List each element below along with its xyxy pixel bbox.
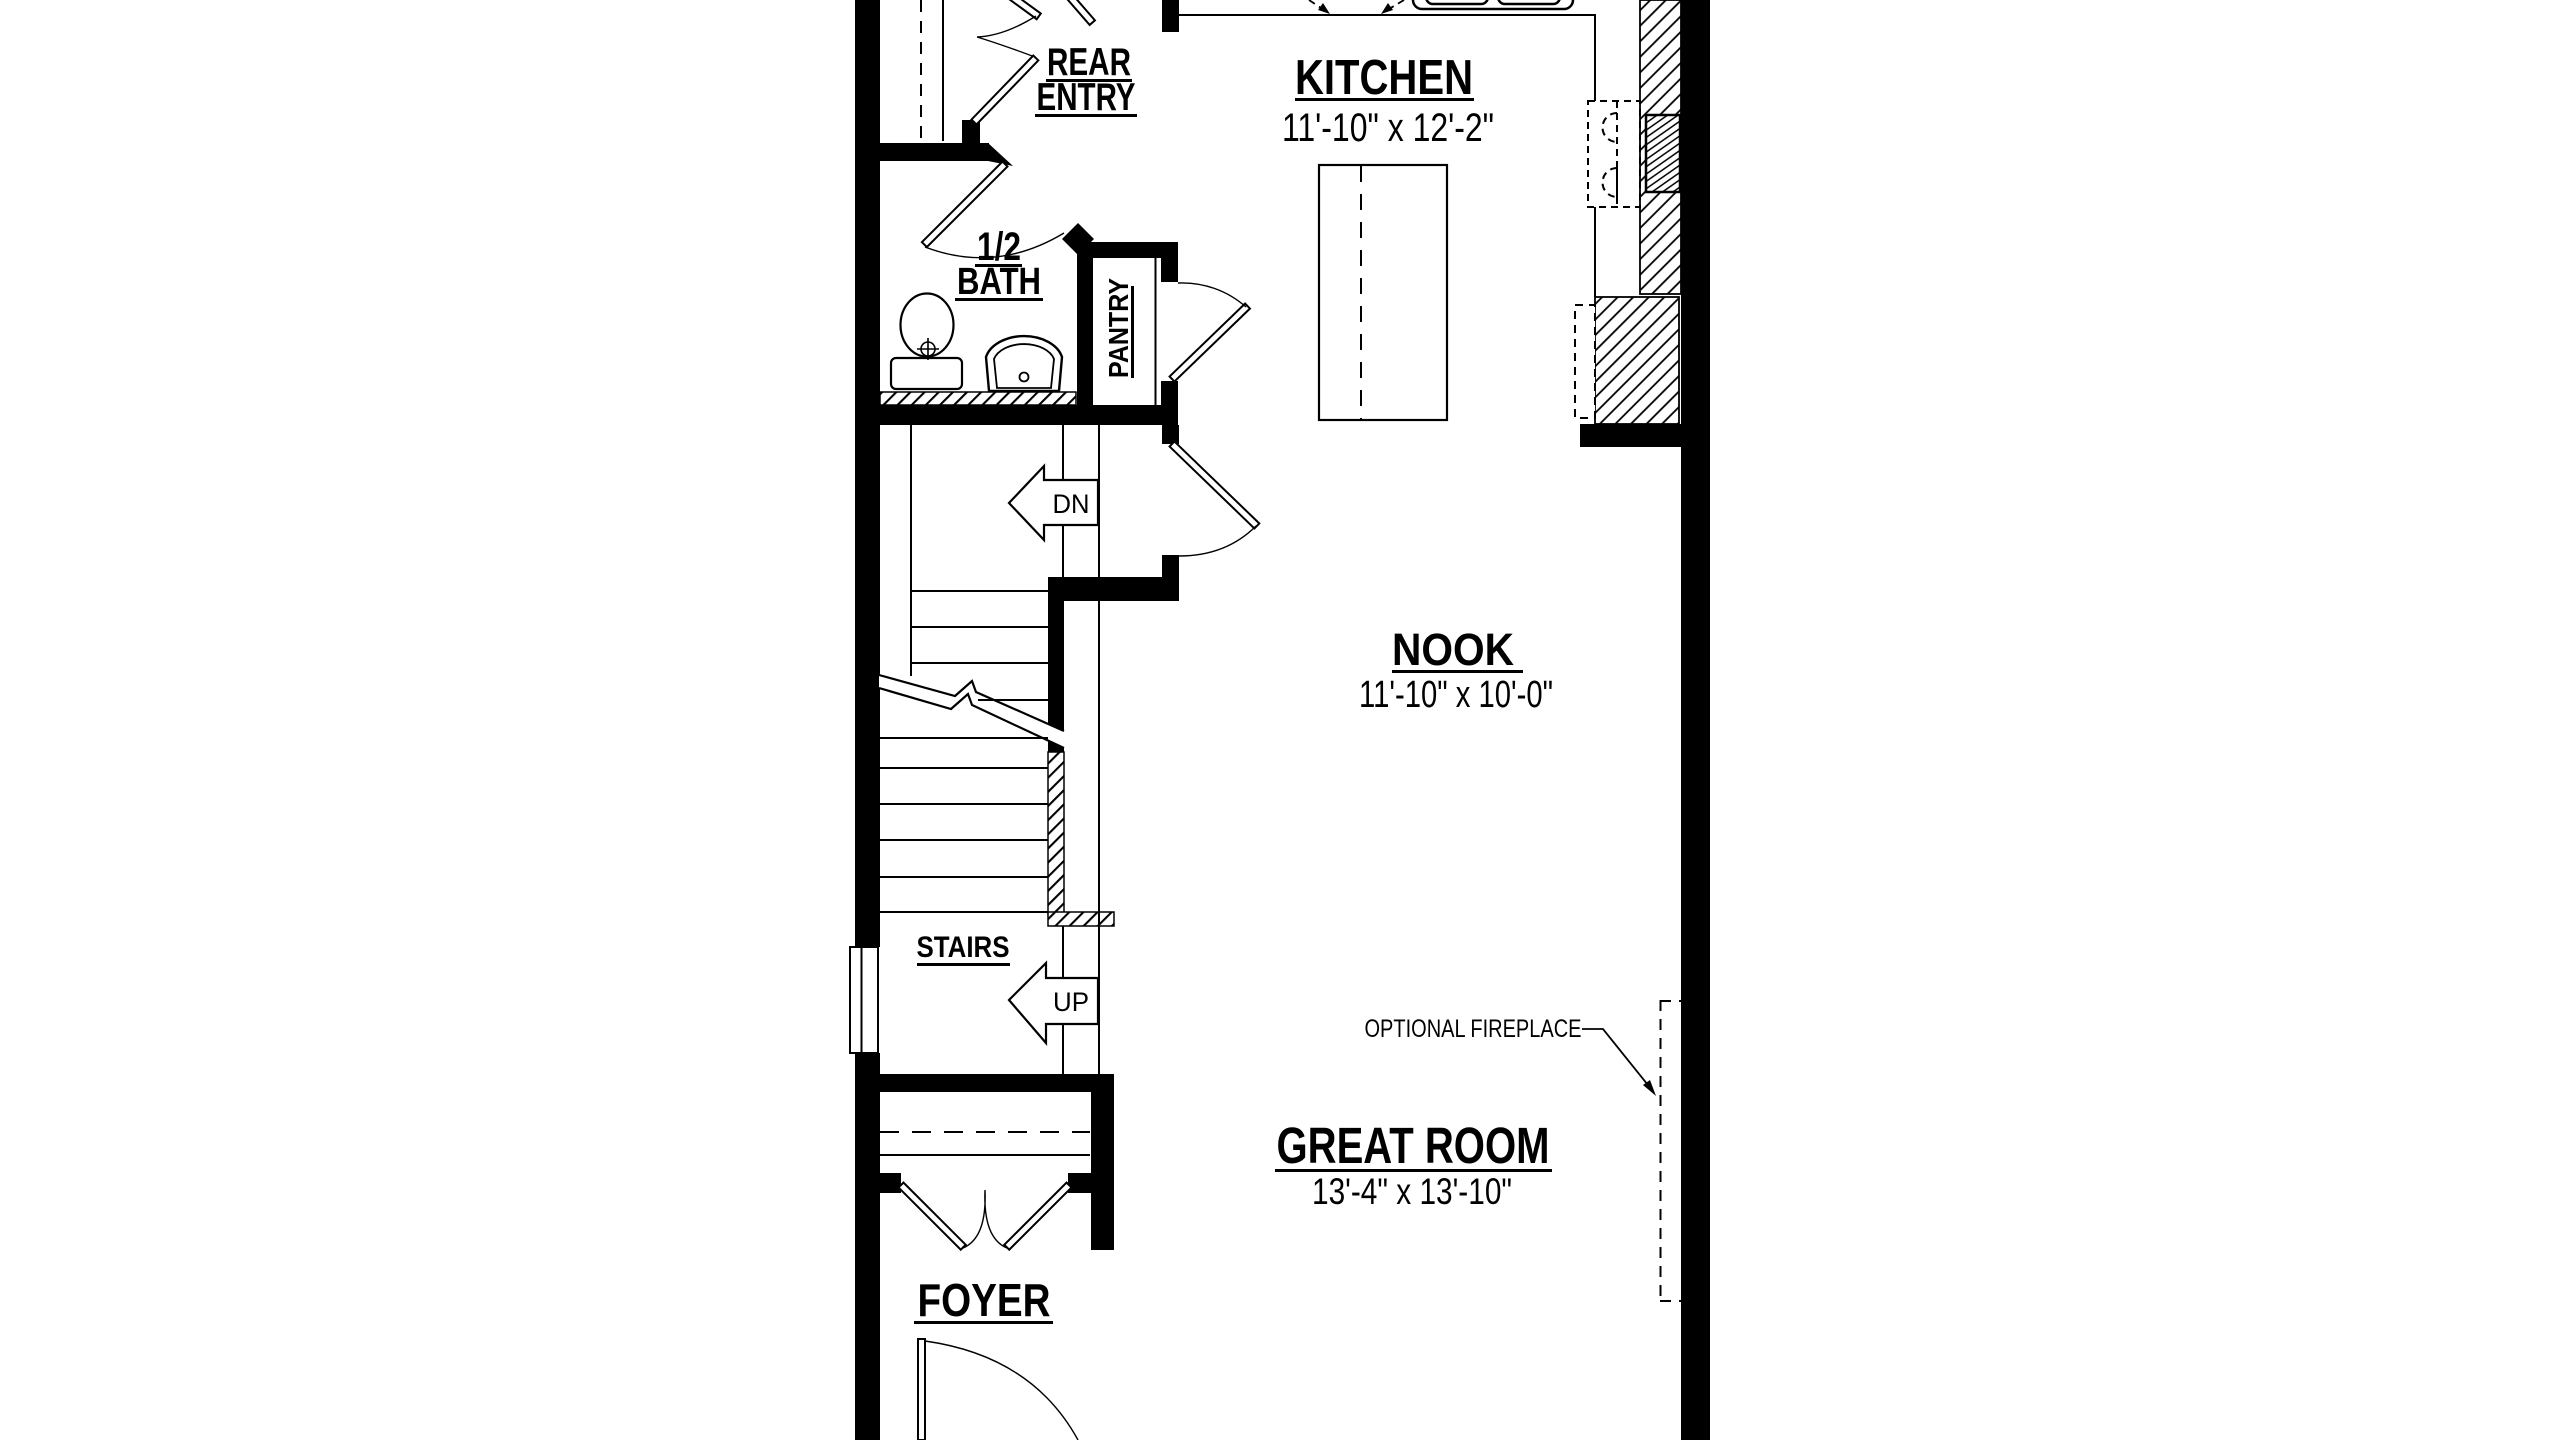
svg-text:DN: DN — [1053, 489, 1090, 519]
svg-text:GREAT ROOM: GREAT ROOM — [1277, 1117, 1550, 1174]
svg-text:OPTIONAL FIREPLACE: OPTIONAL FIREPLACE — [1365, 1015, 1582, 1043]
svg-text:FOYER: FOYER — [918, 1274, 1051, 1326]
svg-text:NOOK: NOOK — [1392, 624, 1514, 675]
svg-text:11'-10" x 10'-0": 11'-10" x 10'-0" — [1359, 674, 1553, 716]
svg-text:13'-4" x 13'-10": 13'-4" x 13'-10" — [1312, 1171, 1512, 1212]
svg-text:STAIRS: STAIRS — [917, 931, 1010, 964]
svg-text:ENTRY: ENTRY — [1037, 76, 1136, 119]
svg-text:PANTRY: PANTRY — [1103, 278, 1134, 378]
svg-text:UP: UP — [1053, 987, 1089, 1017]
svg-text:11'-10" x 12'-2": 11'-10" x 12'-2" — [1282, 106, 1494, 150]
svg-text:BATH: BATH — [957, 261, 1041, 303]
svg-text:KITCHEN: KITCHEN — [1295, 51, 1473, 105]
